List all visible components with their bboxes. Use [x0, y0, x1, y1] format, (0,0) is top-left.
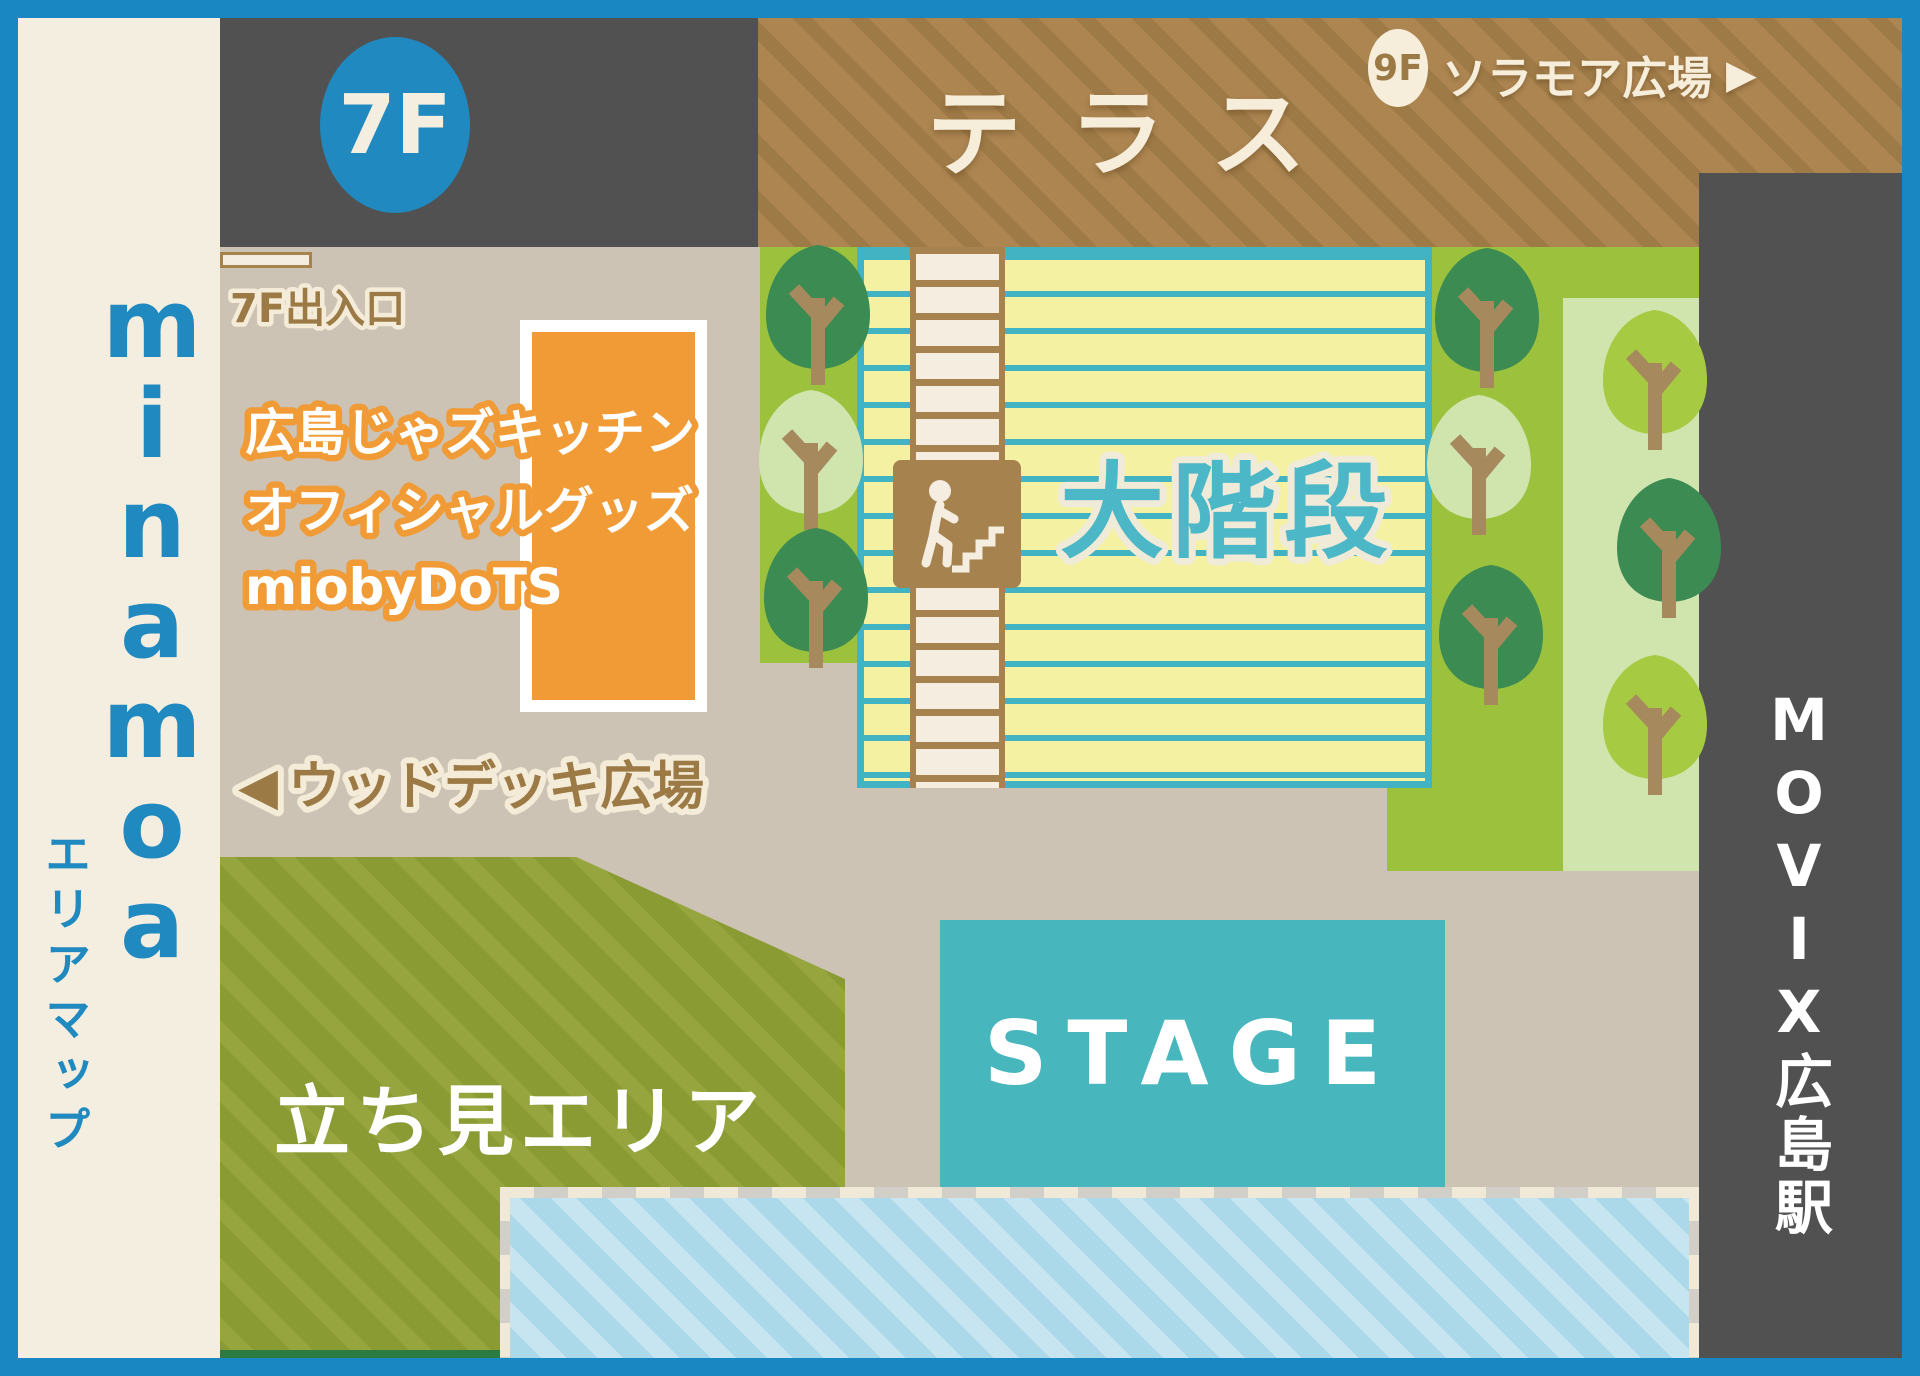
- standing-area-label: 立ち見エリア: [240, 1060, 800, 1170]
- soramoa-link: ソラモア広場 ▶: [1442, 42, 1757, 107]
- soramoa-floor-badge: 9F: [1368, 29, 1428, 107]
- stage-label: STAGE: [984, 1002, 1401, 1105]
- brand-minamoa: minamoa: [104, 270, 199, 970]
- arrow-right-icon: ▶: [1726, 52, 1757, 98]
- floor-7f-badge: 7F: [320, 37, 470, 213]
- goods-booth-line2: オフィシャルグッズ: [245, 482, 694, 540]
- tree-icon: [753, 243, 883, 393]
- grand-staircase-label: 大階段: [1060, 451, 1396, 573]
- stairs-sign: [893, 460, 1021, 588]
- tree-icon: [1604, 476, 1734, 626]
- standing-area-edge: [220, 1350, 506, 1358]
- tree-icon: [1426, 563, 1556, 713]
- floor-7f-block: [220, 18, 778, 247]
- audience-border-left: [500, 1187, 510, 1358]
- tree-icon: [1590, 308, 1720, 458]
- entrance-label-svg: 7F出入口: [220, 276, 540, 340]
- stage-area: STAGE: [940, 920, 1445, 1187]
- arrow-left-icon: ◀: [238, 757, 278, 817]
- lawn-apron: [1387, 788, 1563, 871]
- movix-label: MOVIX広島駅: [1770, 686, 1828, 1240]
- goods-booth-line3: miobyDoTS: [245, 558, 563, 616]
- soramoa-link-label: ソラモア広場: [1442, 42, 1712, 107]
- goods-booth-label-svg: 広島じゃズキッチン オフィシャルグッズ miobyDoTS: [200, 380, 780, 650]
- stairs-person-icon: [902, 469, 1012, 579]
- tree-icon: [1422, 246, 1552, 396]
- wooddeck-link-svg: ◀ウッドデッキ広場: [220, 746, 760, 826]
- entrance-label: 7F出入口: [230, 286, 405, 332]
- audience-border-top: [500, 1187, 1699, 1198]
- audience-area: [510, 1198, 1689, 1358]
- area-map-label: エリアマップ: [42, 830, 88, 1160]
- tree-icon: [1590, 653, 1720, 803]
- goods-booth-line1: 広島じゃズキッチン: [245, 404, 695, 462]
- wooddeck-link: ◀ウッドデッキ広場: [238, 757, 704, 817]
- wooddeck-label: ウッドデッキ広場: [288, 757, 704, 817]
- grand-staircase-label-svg: 大階段: [1018, 446, 1438, 586]
- venue-area-map: minamoa エリアマップ 7F テラス 9F ソラモア広場 ▶ MOVIX広…: [0, 0, 1920, 1376]
- tree-icon: [1414, 393, 1544, 543]
- audience-border-right: [1689, 1187, 1699, 1358]
- terrace-label: テラス: [900, 58, 1380, 195]
- entrance-marker: [220, 252, 312, 268]
